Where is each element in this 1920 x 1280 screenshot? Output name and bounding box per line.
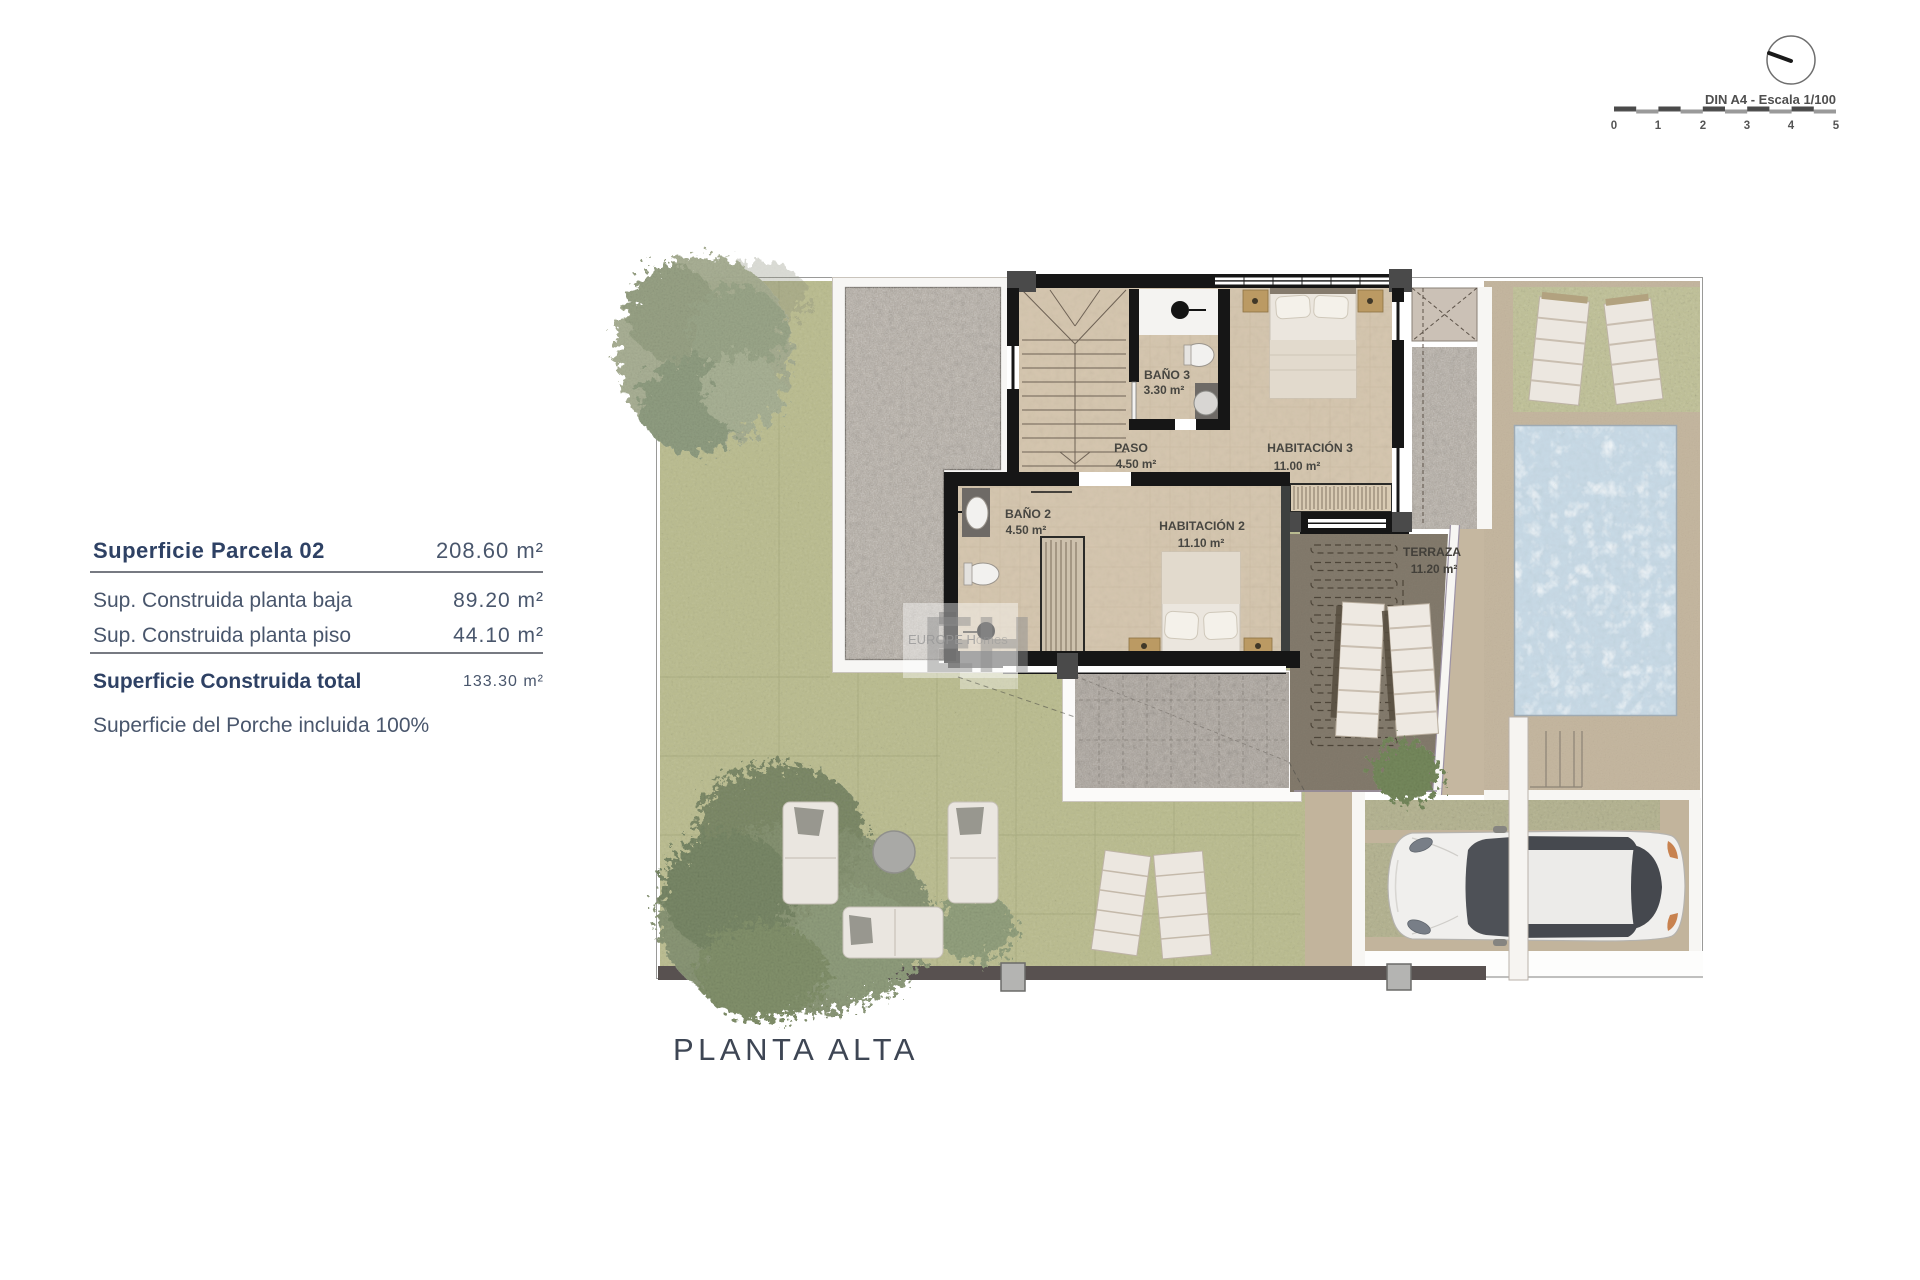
svg-text:0: 0 xyxy=(1611,120,1617,132)
svg-text:2: 2 xyxy=(1700,120,1706,132)
svg-text:Superficie Construida total: Superficie Construida total xyxy=(93,670,361,693)
svg-text:11.10 m²: 11.10 m² xyxy=(1178,536,1225,550)
svg-text:11.00 m²: 11.00 m² xyxy=(1274,459,1321,473)
svg-text:11.20 m²: 11.20 m² xyxy=(1411,562,1458,576)
svg-text:PLANTA ALTA: PLANTA ALTA xyxy=(673,1032,919,1067)
svg-text:Sup. Construida planta baja: Sup. Construida planta baja xyxy=(93,589,352,612)
svg-text:4: 4 xyxy=(1788,120,1795,132)
svg-text:TERRAZA: TERRAZA xyxy=(1403,545,1461,559)
svg-text:BAÑO 2: BAÑO 2 xyxy=(1005,506,1051,521)
svg-text:89.20 m²: 89.20 m² xyxy=(453,589,544,612)
svg-text:3.30 m²: 3.30 m² xyxy=(1144,383,1185,397)
svg-text:HABITACIÓN 3: HABITACIÓN 3 xyxy=(1267,440,1353,455)
svg-text:3: 3 xyxy=(1744,120,1750,132)
svg-text:133.30 m²: 133.30 m² xyxy=(463,673,544,690)
svg-text:4.50 m²: 4.50 m² xyxy=(1006,523,1047,537)
svg-text:208.60 m²: 208.60 m² xyxy=(436,538,544,563)
svg-text:Superficie Parcela 02: Superficie Parcela 02 xyxy=(93,538,325,563)
svg-text:DIN A4 - Escala 1/100: DIN A4 - Escala 1/100 xyxy=(1705,92,1836,107)
svg-text:1: 1 xyxy=(1655,120,1662,132)
svg-text:HABITACIÓN 2: HABITACIÓN 2 xyxy=(1159,518,1245,533)
svg-text:Superficie del Porche incluida: Superficie del Porche incluida 100% xyxy=(93,714,429,737)
svg-text:4.50 m²: 4.50 m² xyxy=(1116,457,1157,471)
svg-text:BAÑO 3: BAÑO 3 xyxy=(1144,367,1190,382)
svg-text:EUROPE Homes: EUROPE Homes xyxy=(908,632,1008,647)
svg-text:44.10 m²: 44.10 m² xyxy=(453,624,544,647)
svg-text:5: 5 xyxy=(1833,120,1840,132)
svg-text:Sup. Construida planta piso: Sup. Construida planta piso xyxy=(93,624,351,647)
svg-text:PASO: PASO xyxy=(1114,441,1148,455)
